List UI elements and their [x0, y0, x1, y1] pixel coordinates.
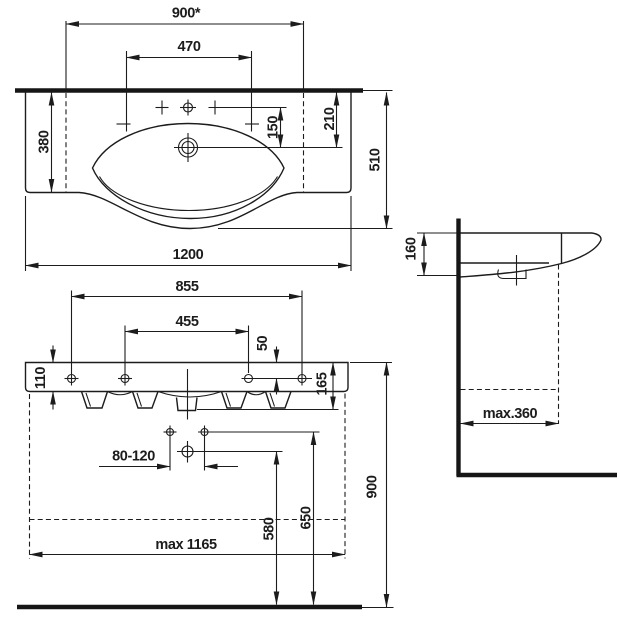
- dim-supply-height: 650: [299, 432, 315, 605]
- dim-max-clearance-width: max 1165: [30, 537, 346, 555]
- dim-front-edge-height: 160: [404, 233, 457, 276]
- drain-outlet-icon: [177, 441, 283, 463]
- basin-underside-profile: [82, 369, 292, 420]
- dim-label-max-clearance: max 1165: [155, 537, 217, 553]
- dim-overall-depth: 510: [218, 91, 393, 229]
- dim-label-supply-height: 650: [299, 506, 315, 529]
- top-view: 900* 470 380 150 210: [15, 6, 393, 272]
- dim-label-rim-height: 900: [365, 475, 381, 498]
- dim-wall-fixing-width: 900*: [66, 6, 304, 193]
- dim-rim-height: 900: [350, 363, 392, 608]
- dim-label-fixing-outer: 855: [176, 279, 199, 295]
- dim-label-faucet-to-drain: 150: [266, 116, 282, 139]
- dim-fixing-hole-spacing-inner: 455: [125, 314, 249, 386]
- faucet-hole-icon: [180, 100, 196, 116]
- washbasin-technical-drawing: 900* 470 380 150 210: [0, 0, 620, 628]
- bowl-inner-line: [100, 177, 278, 211]
- dim-max-wall-clearance: max.360: [461, 406, 559, 424]
- dim-faucet-hole-spacing: 470: [127, 39, 252, 132]
- dim-label-wall-fixing-width: 900*: [172, 6, 201, 22]
- dim-label-rim-to-holes: 50: [255, 336, 271, 352]
- dim-label-overall-depth: 510: [368, 148, 384, 171]
- dim-overall-width: 1200: [26, 196, 352, 271]
- dim-apron-height: 110: [33, 346, 53, 410]
- dim-label-drain-height: 580: [262, 517, 278, 540]
- dim-label-drain-offset: 80-120: [112, 449, 155, 465]
- drain-pipe-outline: [177, 398, 198, 411]
- dim-label-front-edge-height: 160: [404, 237, 420, 260]
- dim-label-max-wall-clearance: max.360: [483, 406, 538, 422]
- dim-fixing-hole-spacing-outer: 855: [72, 279, 303, 386]
- front-view: 855 455 50 110 165: [17, 279, 394, 608]
- basin-side-profile: [461, 233, 602, 286]
- dim-label-fixing-inner: 455: [176, 314, 199, 330]
- dim-total-height: 165: [197, 363, 339, 410]
- dim-label-overall-width: 1200: [173, 247, 204, 263]
- dim-label-total-height: 165: [315, 372, 331, 395]
- dim-label-wall-to-drain: 210: [322, 107, 338, 130]
- dim-rim-to-fixing-holes: 50: [242, 336, 313, 395]
- dim-label-faucet-hole-spacing: 470: [178, 39, 201, 55]
- dim-label-apron-height: 110: [33, 367, 49, 390]
- dim-label-side-depth: 380: [37, 130, 53, 153]
- dim-drain-outlet-height: 580: [262, 452, 278, 605]
- basin-front-outline: [26, 363, 349, 392]
- dim-wall-to-drain: 210: [322, 93, 338, 148]
- side-clearance-outline: [461, 265, 559, 425]
- dim-side-depth: 380: [37, 93, 53, 193]
- supply-cross-icon: [164, 426, 320, 471]
- technical-drawing-page: 900* 470 380 150 210: [0, 0, 620, 628]
- side-view: 160 max.360: [404, 219, 618, 477]
